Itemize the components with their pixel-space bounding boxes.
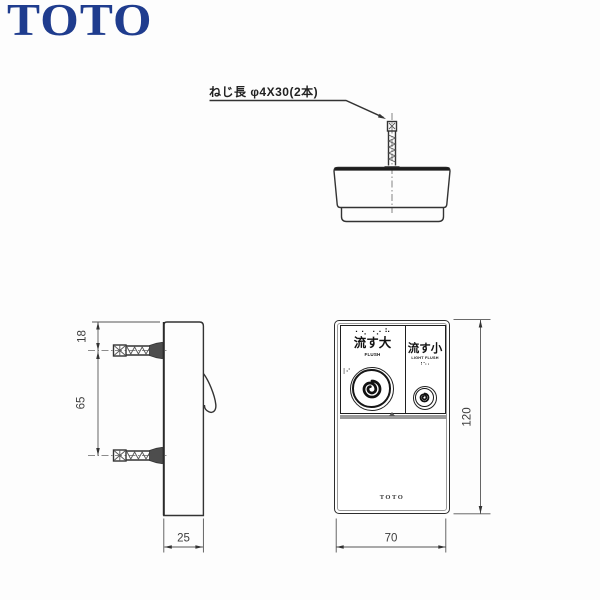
dim-height: 120 (462, 407, 474, 426)
braille-dots: ⠰⠢⠄ (406, 361, 445, 367)
dim-screw-spacing: 65 (76, 397, 88, 410)
button-ring (352, 369, 390, 407)
braille-dots: ⠂⠢ ⠐⠔ ⠓ (341, 328, 405, 337)
button-ring (415, 388, 434, 407)
drawing-linework: 18 65 25 70 120 (0, 0, 600, 600)
flush-large-label: 流す大 (341, 337, 405, 350)
braille-dots: ⠸⠊ (341, 369, 351, 377)
flush-button-panel: ⠂⠢ ⠐⠔ ⠓ 流す大 FLUSH ⠸⠊ 流す小 LIGHT FLUSH ⠰⠢⠄ (340, 325, 446, 414)
panel-separator-band (340, 415, 446, 420)
flush-small-label: 流す小 (406, 343, 445, 355)
front-view-device: ⠂⠢ ⠐⠔ ⠓ 流す大 FLUSH ⠸⠊ 流す小 LIGHT FLUSH ⠰⠢⠄ (334, 320, 450, 514)
cover-notch (389, 412, 395, 416)
dim-top-to-screw: 18 (77, 330, 89, 343)
swirl-icon (361, 378, 383, 400)
dimension-70: 70 (336, 519, 446, 553)
flush-large-button: ⠂⠢ ⠐⠔ ⠓ 流す大 FLUSH ⠸⠊ (341, 326, 406, 413)
flush-small-button: 流す小 LIGHT FLUSH ⠰⠢⠄ (406, 326, 445, 413)
flush-small-sublabel: LIGHT FLUSH (406, 356, 445, 360)
mounting-screw-lower (88, 447, 167, 463)
wall-clip-hook (203, 374, 215, 413)
dim-width: 70 (385, 533, 398, 545)
side-view (88, 322, 216, 516)
device-toto-logo: TOTO (335, 494, 449, 501)
flush-large-sublabel: FLUSH (341, 352, 405, 357)
screw-note-leader (210, 101, 387, 120)
dimension-120: 120 (454, 320, 491, 514)
swirl-icon (419, 392, 430, 403)
technical-drawing-page: TOTO ねじ長 φ4X30(2本) (0, 0, 600, 600)
mounting-screw-upper (88, 342, 167, 358)
top-view (334, 113, 450, 222)
flush-large-button-circle (350, 367, 394, 411)
dimension-25: 25 (164, 519, 204, 553)
dim-depth: 25 (177, 533, 190, 545)
flush-small-button-circle (413, 386, 437, 410)
dimension-18-65: 18 65 (76, 322, 161, 456)
